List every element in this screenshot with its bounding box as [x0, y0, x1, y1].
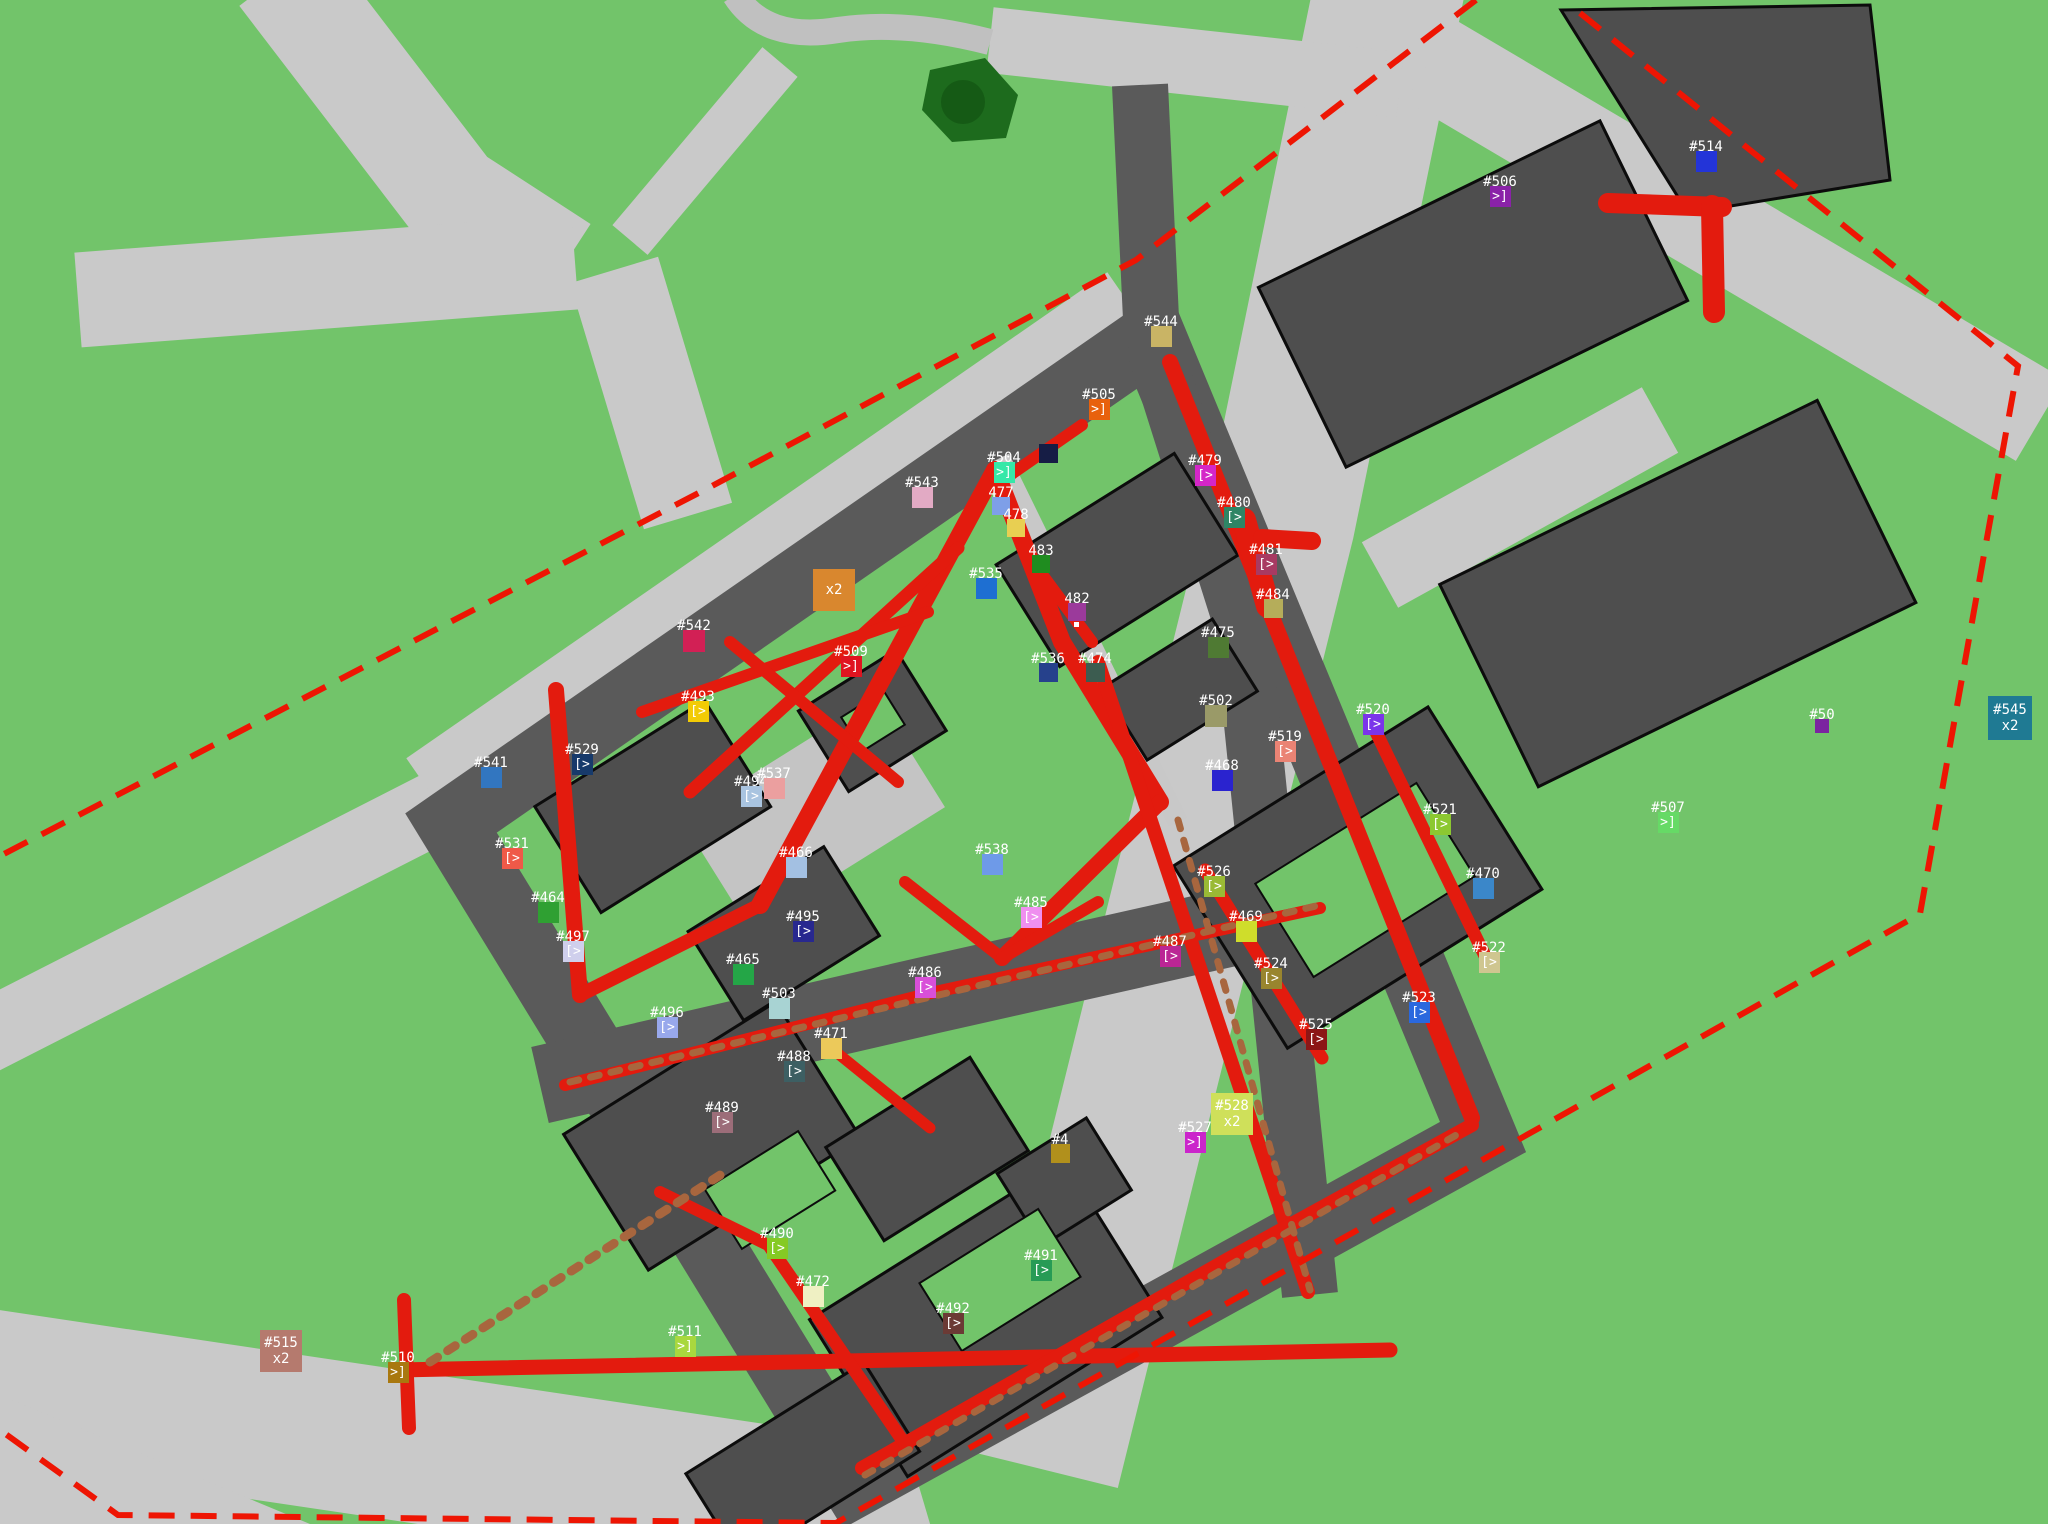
- map-marker[interactable]: #489[>: [712, 1112, 733, 1133]
- map-marker[interactable]: #544: [1151, 326, 1172, 347]
- marker-label: #465: [726, 953, 760, 968]
- marker-label: #480: [1217, 496, 1251, 511]
- marker-label: #502: [1199, 694, 1233, 709]
- map-marker[interactable]: #487[>: [1160, 946, 1181, 967]
- map-marker[interactable]: #468: [1212, 770, 1233, 791]
- marker-label: #474: [1078, 652, 1112, 667]
- marker-direction-glyph: [>: [1033, 1264, 1049, 1277]
- marker-label: #529: [565, 743, 599, 758]
- map-marker[interactable]: #542: [683, 630, 705, 652]
- marker-label: #504: [987, 451, 1021, 466]
- map-marker[interactable]: #522[>: [1479, 952, 1500, 973]
- marker-direction-glyph: [>: [1206, 880, 1222, 893]
- marker-square: #515x2: [260, 1330, 302, 1372]
- map-marker[interactable]: #510>]: [388, 1362, 409, 1383]
- map-marker[interactable]: #527>]: [1185, 1132, 1206, 1153]
- map-marker[interactable]: #541: [481, 767, 502, 788]
- map-marker[interactable]: #537: [764, 778, 785, 799]
- map-marker[interactable]: #529[>: [572, 754, 593, 775]
- marker-direction-glyph: >]: [843, 660, 859, 673]
- marker-label: 482: [1064, 592, 1089, 607]
- map-marker[interactable]: #502: [1205, 705, 1227, 727]
- marker-square: #528x2: [1211, 1093, 1253, 1135]
- marker-label: #526: [1197, 865, 1231, 880]
- marker-direction-glyph: [>: [795, 925, 811, 938]
- map-marker[interactable]: #519[>: [1275, 741, 1296, 762]
- marker-label: #523: [1402, 991, 1436, 1006]
- marker-label: #536: [1031, 652, 1065, 667]
- marker-label: #531: [495, 837, 529, 852]
- marker-label: #471: [814, 1027, 848, 1042]
- map-marker[interactable]: #514: [1696, 151, 1717, 172]
- map-marker[interactable]: #495[>: [793, 921, 814, 942]
- map-marker[interactable]: #481[>: [1256, 554, 1277, 575]
- marker-direction-glyph: [>: [1258, 558, 1274, 571]
- marker-label: #487: [1153, 935, 1187, 950]
- map-marker[interactable]: #492[>: [943, 1313, 964, 1334]
- map-marker[interactable]: #494[>: [741, 786, 762, 807]
- map-marker[interactable]: #474: [1086, 663, 1105, 682]
- map-marker[interactable]: #531[>: [502, 848, 523, 869]
- map-marker[interactable]: #497[>: [563, 941, 584, 962]
- marker-label: #507: [1651, 801, 1685, 816]
- map-marker[interactable]: #50: [1815, 719, 1829, 733]
- map-marker[interactable]: #471: [821, 1038, 842, 1059]
- marker-label: #538: [975, 843, 1009, 858]
- map-marker[interactable]: #475: [1208, 637, 1229, 658]
- marker-label: #485: [1014, 896, 1048, 911]
- marker-label: #537: [757, 767, 791, 782]
- marker-direction-glyph: >]: [1492, 190, 1508, 203]
- marker-direction-glyph: [>: [945, 1317, 961, 1330]
- map-marker[interactable]: #509>]: [841, 656, 862, 677]
- marker-label: #481: [1249, 543, 1283, 558]
- map-marker[interactable]: #484: [1264, 599, 1283, 618]
- map-marker[interactable]: #488[>: [784, 1061, 805, 1082]
- marker-direction-glyph: >]: [1660, 816, 1676, 829]
- marker-label: #493: [681, 690, 715, 705]
- marker-label: #469: [1229, 910, 1263, 925]
- map-marker[interactable]: #503: [769, 998, 790, 1019]
- marker-label: #4: [1052, 1133, 1069, 1148]
- marker-label: #503: [762, 987, 796, 1002]
- marker-label: #484: [1256, 588, 1290, 603]
- map-marker[interactable]: #521[>: [1430, 814, 1451, 835]
- marker-direction-glyph: [>: [574, 758, 590, 771]
- marker-direction-glyph: [>: [714, 1116, 730, 1129]
- marker-direction-glyph: [>: [504, 852, 520, 865]
- marker-label: #466: [779, 846, 813, 861]
- marker-label: #506: [1483, 175, 1517, 190]
- marker-direction-glyph: [>: [565, 945, 581, 958]
- map-marker[interactable]: #515x2: [260, 1330, 302, 1372]
- marker-label: #541: [474, 756, 508, 771]
- marker-direction-glyph: [>: [1263, 972, 1279, 985]
- marker-direction-glyph: [>: [1197, 469, 1213, 482]
- map-marker[interactable]: #480[>: [1224, 507, 1245, 528]
- marker-label: #527: [1178, 1121, 1212, 1136]
- marker-label: #468: [1205, 759, 1239, 774]
- marker-label: #519: [1268, 730, 1302, 745]
- map-marker[interactable]: #545x2: [1988, 696, 2032, 740]
- marker-direction-glyph: >]: [1091, 403, 1107, 416]
- map-marker[interactable]: #472: [803, 1286, 824, 1307]
- marker-label: #497: [556, 930, 590, 945]
- marker-multiplier-badge: x2: [826, 583, 843, 598]
- marker-label: #511: [668, 1325, 702, 1340]
- marker-label: #479: [1188, 454, 1222, 469]
- map-marker[interactable]: #525[>: [1306, 1029, 1327, 1050]
- marker-direction-glyph: [>: [1162, 950, 1178, 963]
- marker-direction-glyph: [>: [769, 1242, 785, 1255]
- map-marker[interactable]: #493[>: [688, 701, 709, 722]
- marker-label: 478: [1003, 508, 1028, 523]
- map-marker[interactable]: #535: [976, 578, 997, 599]
- marker-direction-glyph: [>: [1277, 745, 1293, 758]
- map-marker[interactable]: #504>]: [994, 462, 1015, 483]
- map-marker[interactable]: #538: [982, 854, 1003, 875]
- map-marker[interactable]: 478: [1007, 519, 1025, 537]
- map-marker[interactable]: #490[>: [767, 1238, 788, 1259]
- marker-label: #542: [677, 619, 711, 634]
- map-marker[interactable]: #464: [538, 902, 559, 923]
- map-marker[interactable]: #523[>: [1409, 1002, 1430, 1023]
- map-marker[interactable]: #526[>: [1204, 876, 1225, 897]
- map-marker[interactable]: #470: [1473, 878, 1494, 899]
- marker-direction-glyph: [>: [1481, 956, 1497, 969]
- marker-direction-glyph: [>: [690, 705, 706, 718]
- marker-direction-glyph: [>: [786, 1065, 802, 1078]
- map-marker[interactable]: #507>]: [1658, 812, 1679, 833]
- map-marker[interactable]: #511>]: [675, 1336, 696, 1357]
- marker-dot: [1074, 622, 1079, 627]
- marker-label: 483: [1028, 544, 1053, 559]
- map-marker[interactable]: x2: [813, 569, 855, 611]
- marker-direction-glyph: [>: [1308, 1033, 1324, 1046]
- marker-label: #496: [650, 1006, 684, 1021]
- markers-layer: #506>]#514#544#505>]#504>]#543477478483#…: [0, 0, 2048, 1524]
- map-marker[interactable]: #479[>: [1195, 465, 1216, 486]
- marker-label: #472: [796, 1275, 830, 1290]
- map-marker[interactable]: #485[>: [1021, 907, 1042, 928]
- map-marker[interactable]: #543: [912, 487, 933, 508]
- marker-label: #475: [1201, 626, 1235, 641]
- marker-direction-glyph: >]: [996, 466, 1012, 479]
- marker-label: #495: [786, 910, 820, 925]
- marker-label: 477: [988, 486, 1013, 501]
- marker-label: #535: [969, 567, 1003, 582]
- map-marker[interactable]: 482: [1068, 603, 1086, 621]
- marker-square: [1039, 444, 1058, 463]
- marker-label: #490: [760, 1227, 794, 1242]
- marker-label: #545: [1993, 703, 2027, 718]
- marker-label: #520: [1356, 703, 1390, 718]
- marker-label: #514: [1689, 140, 1723, 155]
- marker-label: #505: [1082, 388, 1116, 403]
- marker-label: #522: [1472, 941, 1506, 956]
- marker-direction-glyph: >]: [677, 1340, 693, 1353]
- map-marker[interactable]: #505>]: [1089, 399, 1110, 420]
- marker-direction-glyph: [>: [1023, 911, 1039, 924]
- marker-multiplier-badge: x2: [1224, 1115, 1241, 1130]
- map-marker[interactable]: #466: [786, 857, 807, 878]
- marker-direction-glyph: [>: [1432, 818, 1448, 831]
- map-marker[interactable]: #491[>: [1031, 1260, 1052, 1281]
- marker-label: #509: [834, 645, 868, 660]
- marker-label: #470: [1466, 867, 1500, 882]
- marker-label: #528: [1215, 1099, 1249, 1114]
- marker-label: #524: [1254, 957, 1288, 972]
- map-marker[interactable]: 483: [1032, 555, 1050, 573]
- marker-square: x2: [813, 569, 855, 611]
- marker-direction-glyph: [>: [1365, 718, 1381, 731]
- marker-direction-glyph: [>: [1411, 1006, 1427, 1019]
- marker-multiplier-badge: x2: [2002, 719, 2019, 734]
- marker-label: #521: [1423, 803, 1457, 818]
- map-marker[interactable]: #465: [733, 964, 754, 985]
- marker-multiplier-badge: x2: [273, 1352, 290, 1367]
- marker-label: #489: [705, 1101, 739, 1116]
- marker-square: #545x2: [1988, 696, 2032, 740]
- marker-label: #492: [936, 1302, 970, 1317]
- marker-label: #544: [1144, 315, 1178, 330]
- map-viewport: #506>]#514#544#505>]#504>]#543477478483#…: [0, 0, 2048, 1524]
- marker-label: #488: [777, 1050, 811, 1065]
- marker-label: #543: [905, 476, 939, 491]
- map-marker[interactable]: #469: [1236, 921, 1257, 942]
- marker-direction-glyph: [>: [743, 790, 759, 803]
- map-marker[interactable]: #524[>: [1261, 968, 1282, 989]
- marker-label: #50: [1809, 708, 1834, 723]
- marker-direction-glyph: >]: [390, 1366, 406, 1379]
- marker-direction-glyph: [>: [659, 1021, 675, 1034]
- marker-label: #510: [381, 1351, 415, 1366]
- marker-label: #486: [908, 966, 942, 981]
- map-marker[interactable]: #486[>: [915, 977, 936, 998]
- marker-direction-glyph: [>: [1226, 511, 1242, 524]
- marker-direction-glyph: >]: [1187, 1136, 1203, 1149]
- map-marker[interactable]: #520[>: [1363, 714, 1384, 735]
- marker-label: #515: [264, 1336, 298, 1351]
- map-marker[interactable]: #528x2: [1211, 1093, 1253, 1135]
- map-marker[interactable]: #4: [1051, 1144, 1070, 1163]
- map-marker[interactable]: #536: [1039, 663, 1058, 682]
- marker-square: [1074, 622, 1079, 627]
- marker-label: #491: [1024, 1249, 1058, 1264]
- map-marker[interactable]: #506>]: [1490, 186, 1511, 207]
- marker-label: #525: [1299, 1018, 1333, 1033]
- marker-direction-glyph: [>: [917, 981, 933, 994]
- map-marker[interactable]: [1039, 444, 1058, 463]
- marker-label: #464: [531, 891, 565, 906]
- map-marker[interactable]: #496[>: [657, 1017, 678, 1038]
